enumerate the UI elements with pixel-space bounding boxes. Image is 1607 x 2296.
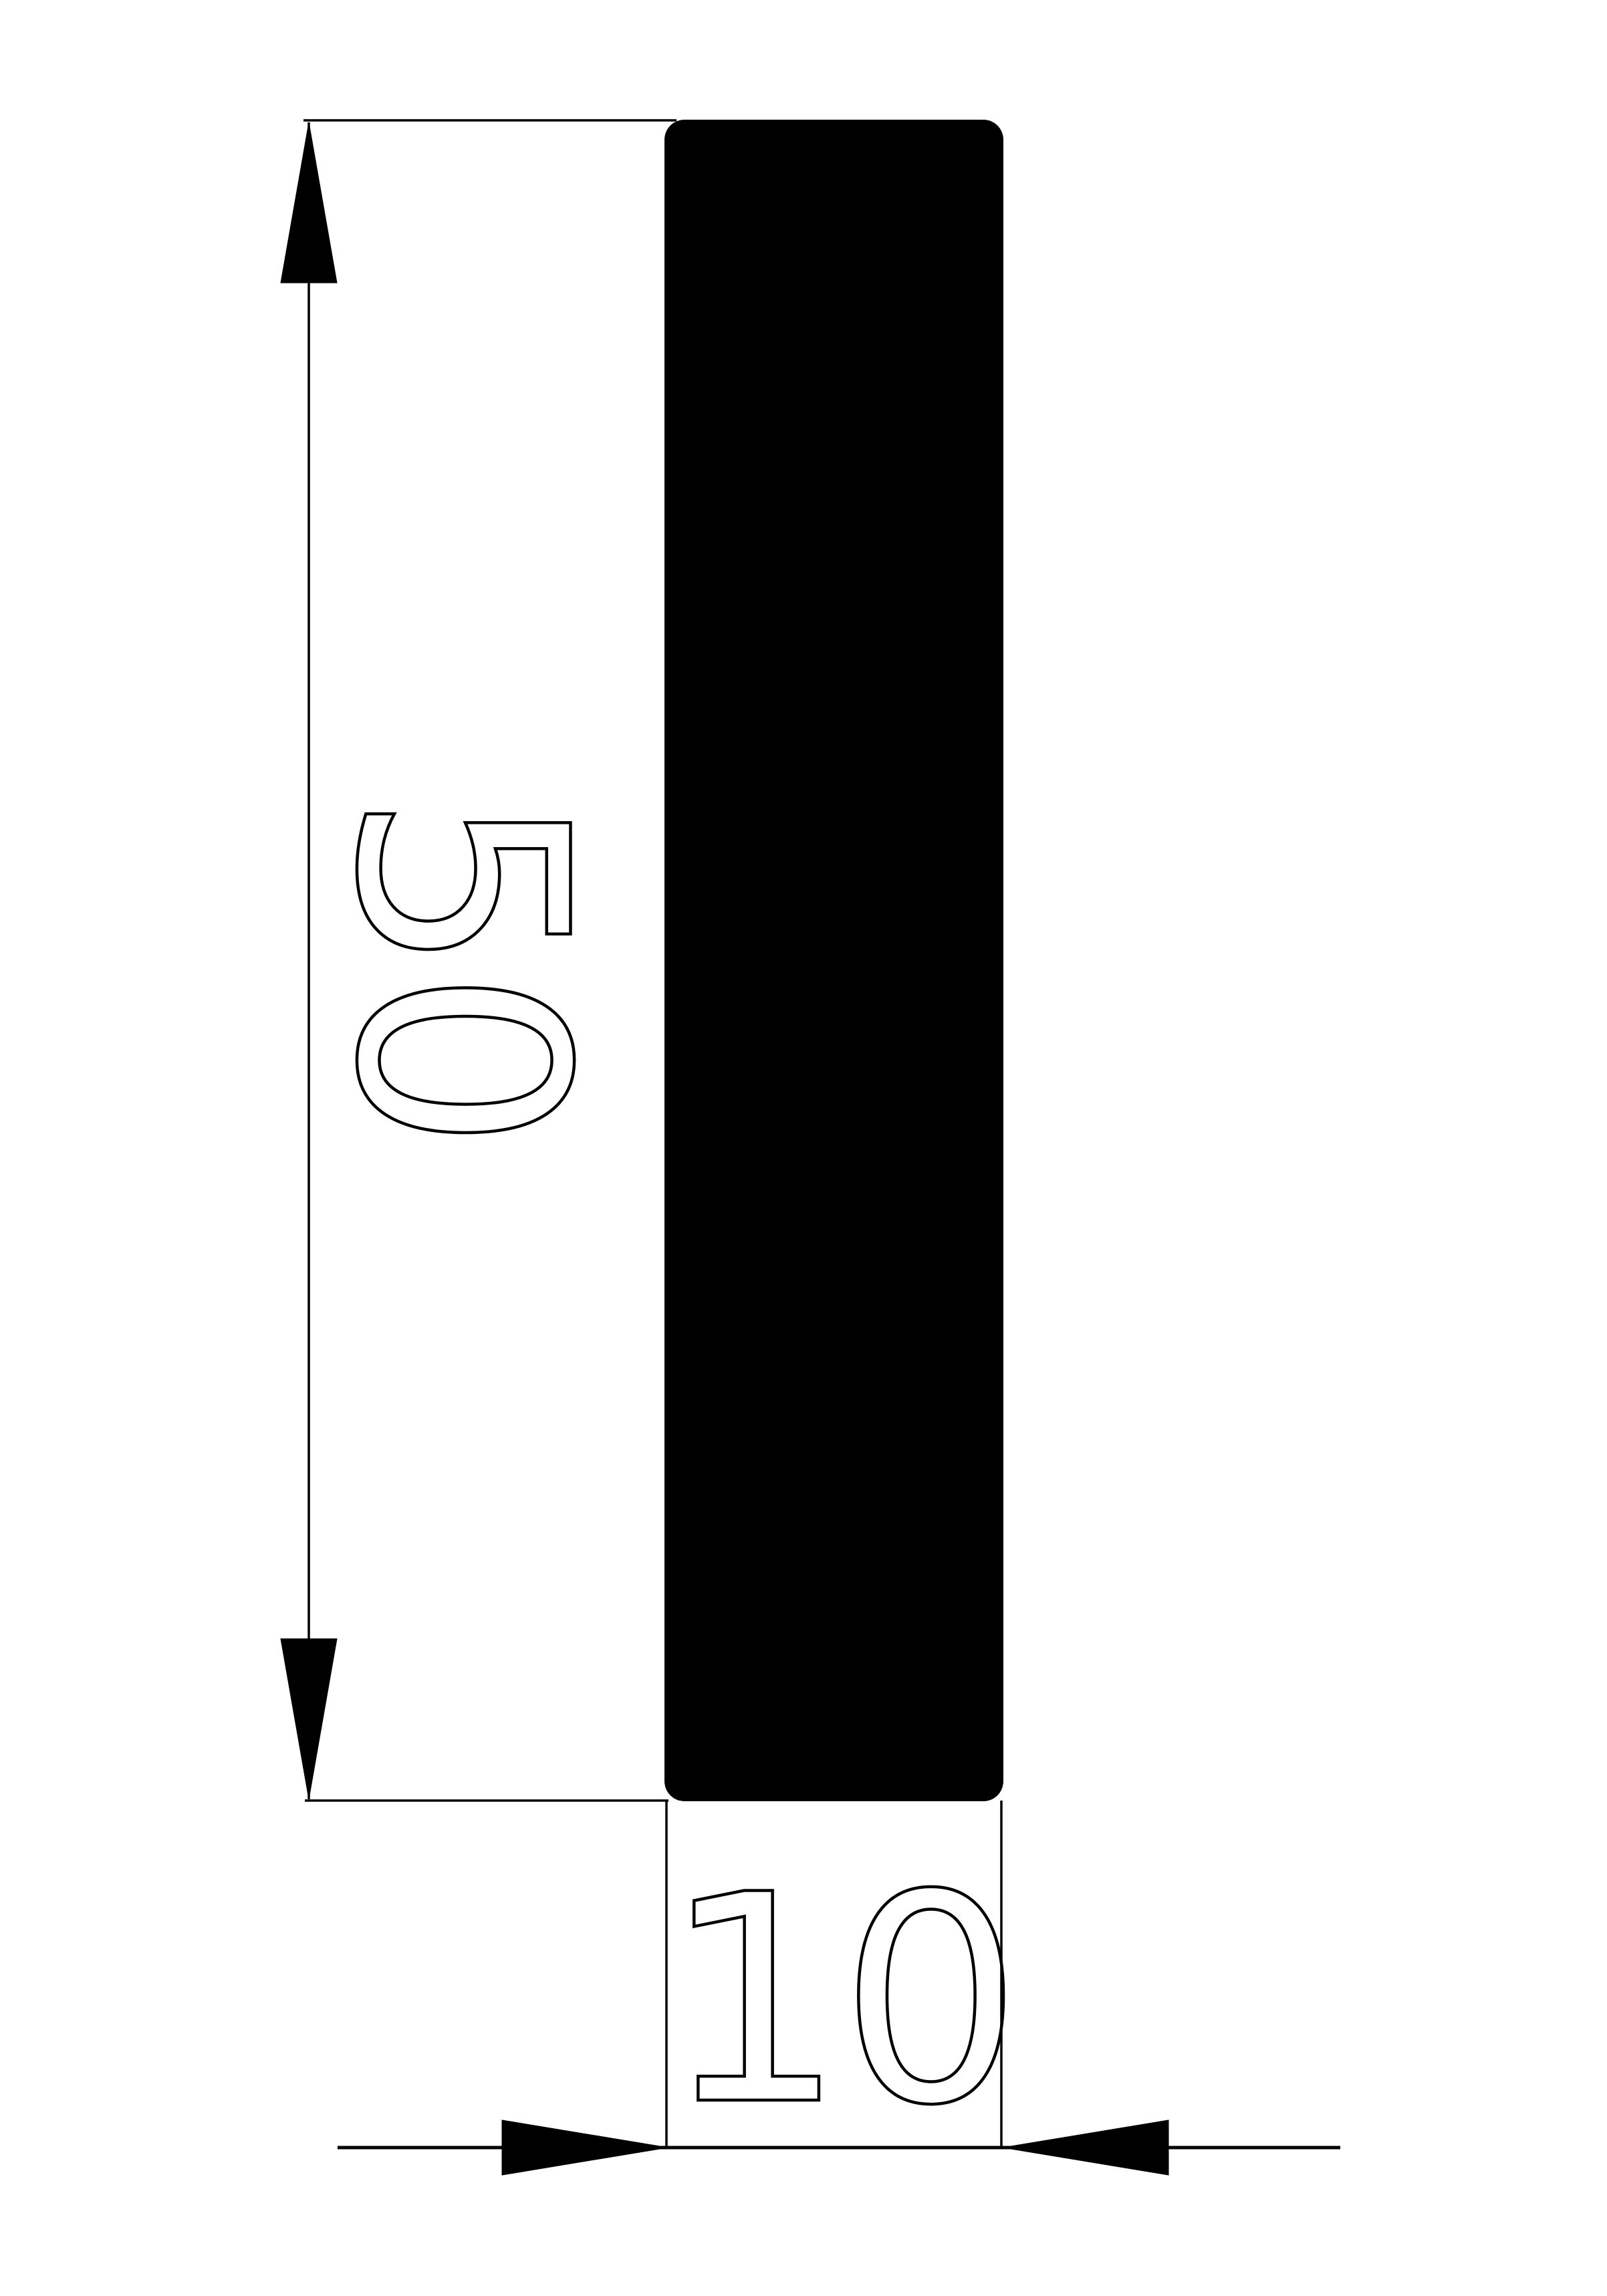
arrowhead-up-icon <box>281 122 337 283</box>
technical-drawing-canvas: 50 10 <box>0 0 1607 2296</box>
arrowhead-down-icon <box>281 1639 337 1799</box>
width-dimension-label: 10 <box>662 1834 1017 2168</box>
height-dimension-label: 50 <box>293 792 627 1146</box>
drawing-svg: 50 10 <box>0 0 1607 2296</box>
width-dimension: 10 <box>338 1801 1340 2175</box>
height-dimension: 50 <box>281 120 676 1801</box>
profile-rectangle <box>664 120 1003 1801</box>
arrowhead-right-icon <box>502 2120 668 2175</box>
arrowhead-left-icon <box>1003 2120 1168 2175</box>
